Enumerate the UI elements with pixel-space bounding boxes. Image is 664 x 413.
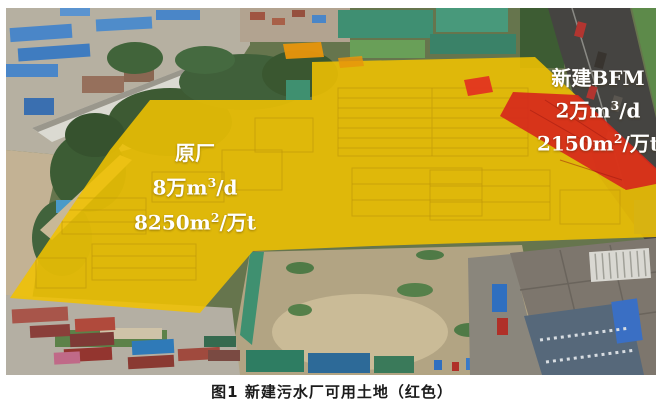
original-plant-label: 原厂 8万m3/d 8250m2/万t — [100, 138, 290, 237]
figure-page: 原厂 8万m3/d 8250m2/万t 新建BFM 2万m3/d 2150m2/… — [0, 0, 664, 413]
new-bfm-capacity: 2万m3/d — [517, 92, 656, 125]
original-plant-capacity: 8万m3/d — [100, 168, 290, 203]
figure-caption: 图1 新建污水厂可用土地（红色） — [0, 381, 664, 402]
new-bfm-footprint: 2150m2/万t — [517, 125, 656, 158]
orange-roof-patch-2 — [338, 56, 364, 68]
original-plant-title: 原厂 — [100, 138, 290, 168]
orange-roof-patch — [283, 42, 324, 59]
original-plant-footprint: 8250m2/万t — [100, 203, 290, 238]
aerial-photo: 原厂 8万m3/d 8250m2/万t 新建BFM 2万m3/d 2150m2/… — [6, 8, 656, 375]
new-bfm-label: 新建BFM 2万m3/d 2150m2/万t — [517, 64, 656, 157]
warehouse — [468, 238, 656, 375]
new-bfm-title: 新建BFM — [517, 64, 656, 92]
